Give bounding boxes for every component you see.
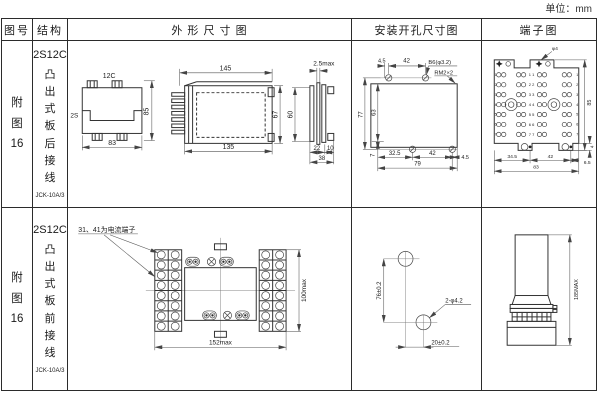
dim-100max: 100max bbox=[301, 278, 308, 302]
row1-fig-no: 附图16 bbox=[9, 93, 25, 155]
svg-text:1: 1 bbox=[576, 73, 578, 77]
dim-152max: 152max bbox=[209, 340, 233, 347]
row2-install-drawing: 76±0.2 20±0.2 2-φ4.2 bbox=[352, 208, 481, 390]
dim-38: 38 bbox=[319, 156, 326, 162]
dim-42-bottom: 42 bbox=[429, 151, 436, 157]
thread-spec-label: RM2×2 bbox=[434, 70, 453, 76]
mounting-holes bbox=[378, 75, 457, 153]
dim-10: 10 bbox=[327, 146, 334, 152]
dim-83: 83 bbox=[108, 140, 116, 147]
svg-text:3: 3 bbox=[576, 93, 578, 97]
row2-type-code: JCK-10A/3 bbox=[35, 368, 64, 374]
rear-view bbox=[310, 83, 334, 145]
header-structure: 结构 bbox=[33, 19, 68, 41]
row2-terminal-cell: 185MAX bbox=[482, 208, 596, 390]
row1-install-drawing: 4.5 42 B6(φ3.2) RM2×2 77 63 7 32.5 42 4.… bbox=[352, 41, 481, 207]
dim-4-5-top: 4.5 bbox=[378, 58, 386, 64]
dim-4-5-right: 4.5 bbox=[461, 155, 469, 161]
dim-85: 85 bbox=[143, 108, 150, 116]
header-install: 安装开孔尺寸图 bbox=[352, 19, 482, 41]
row2-fig-no-cell: 附图16 bbox=[2, 208, 33, 390]
svg-text:4: 4 bbox=[576, 103, 578, 107]
row2-outline-cell: 31、41为电流端子 100max 152max bbox=[68, 208, 352, 390]
label-2s: 2S bbox=[70, 113, 79, 120]
current-terminal-note: 31、41为电流端子 bbox=[78, 225, 135, 234]
terminal-row-numbers-left: 1 2 3 4 5 6 7 bbox=[495, 73, 497, 137]
dim-83-term: 83 bbox=[533, 165, 539, 171]
dim-42-term: 42 bbox=[548, 154, 554, 160]
svg-text:6: 6 bbox=[576, 123, 578, 127]
svg-text:3: 3 bbox=[495, 93, 497, 97]
svg-text:7 7: 7 7 bbox=[529, 132, 535, 137]
label-12c: 12C bbox=[103, 73, 116, 80]
dim-77: 77 bbox=[358, 111, 364, 118]
dim-6-5: 6.5 bbox=[584, 160, 591, 166]
relay-side-silhouette bbox=[507, 235, 557, 345]
row1-wiring-type: 凸出式板后接线 bbox=[43, 67, 57, 186]
dim-7: 7 bbox=[370, 154, 376, 157]
spec-sheet: 单位：mm 图号 结构 外 形 尺 寸 图 安装开孔尺寸图 端子图 附图16 2… bbox=[0, 0, 600, 400]
dim-185max: 185MAX bbox=[574, 279, 580, 300]
row1-structure-cell: 2S12C 凸出式板后接线 JCK-10A/3 bbox=[33, 41, 68, 208]
dim-76: 76±0.2 bbox=[377, 282, 383, 300]
unit-label: 单位：mm bbox=[545, 0, 592, 15]
hole-spec-label: B6(φ3.2) bbox=[428, 60, 451, 66]
row2-structure-cell: 2S12C 凸出式板前接线 JCK-10A/3 bbox=[33, 208, 68, 390]
terminal-row-numbers-right: 1 2 3 4 5 6 7 bbox=[576, 73, 578, 137]
dim-79: 79 bbox=[414, 162, 421, 168]
dim-4-foot: 4 bbox=[590, 145, 595, 148]
dim-85-right: 85 bbox=[587, 100, 593, 106]
dim-32-5: 32.5 bbox=[389, 151, 401, 157]
dim-20: 20±0.2 bbox=[431, 341, 449, 347]
row1-model: 2S12C bbox=[33, 49, 67, 61]
svg-text:3 3: 3 3 bbox=[529, 92, 535, 97]
svg-text:7: 7 bbox=[495, 133, 497, 137]
svg-text:5: 5 bbox=[576, 113, 578, 117]
row1-fig-no-cell: 附图16 bbox=[2, 41, 33, 208]
header-terminal: 端子图 bbox=[482, 19, 596, 41]
svg-text:2: 2 bbox=[495, 83, 497, 87]
svg-text:7: 7 bbox=[576, 133, 578, 137]
dim-145: 145 bbox=[220, 65, 232, 72]
height-dim bbox=[548, 235, 572, 345]
dim-22: 22 bbox=[314, 146, 321, 152]
svg-text:1: 1 bbox=[495, 73, 497, 77]
row1-type-code: JCK-10A/3 bbox=[35, 193, 64, 199]
row2-outline-drawing: 31、41为电流端子 100max 152max bbox=[68, 208, 351, 390]
row2-terminal-drawing: 185MAX bbox=[482, 208, 596, 390]
svg-text:5: 5 bbox=[495, 113, 497, 117]
header-fig-no: 图号 bbox=[2, 19, 33, 41]
row1-install-cell: 4.5 42 B6(φ3.2) RM2×2 77 63 7 32.5 42 4.… bbox=[352, 41, 482, 208]
spec-table: 图号 结构 外 形 尺 寸 图 安装开孔尺寸图 端子图 附图16 2S12C 凸… bbox=[1, 18, 597, 391]
svg-text:2: 2 bbox=[576, 83, 578, 87]
dim-135: 135 bbox=[223, 144, 235, 151]
svg-text:4 4: 4 4 bbox=[529, 102, 535, 107]
dim-34-5: 34.5 bbox=[507, 154, 517, 160]
screw-fittings bbox=[186, 257, 250, 320]
hole-centerlines bbox=[384, 251, 438, 347]
dim-2-5max: 2.5max bbox=[313, 60, 335, 67]
install-dims bbox=[363, 63, 457, 171]
dim-67: 67 bbox=[273, 111, 280, 119]
terminal-center-numbers: 1 1 2 2 3 3 4 4 5 5 6 6 7 7 bbox=[529, 72, 535, 137]
panel-cutout bbox=[371, 84, 457, 148]
top-view bbox=[82, 81, 142, 141]
side-view bbox=[172, 82, 274, 144]
svg-text:1 1: 1 1 bbox=[529, 72, 535, 77]
row2-wiring-type: 凸出式板前接线 bbox=[43, 242, 57, 361]
svg-text:5 5: 5 5 bbox=[529, 112, 535, 117]
dim-63: 63 bbox=[371, 109, 377, 116]
row2-install-cell: 76±0.2 20±0.2 2-φ4.2 bbox=[352, 208, 482, 390]
row1-terminal-drawing: 1 2 3 4 5 6 7 1 2 3 4 5 6 7 bbox=[482, 41, 596, 207]
svg-text:6 6: 6 6 bbox=[529, 122, 535, 127]
drill-holes bbox=[398, 251, 431, 329]
svg-text:6: 6 bbox=[495, 123, 497, 127]
row1-outline-drawing: 12C 2S 85 83 bbox=[68, 41, 351, 207]
row1-outline-cell: 12C 2S 85 83 bbox=[68, 41, 352, 208]
row1-terminal-cell: 1 2 3 4 5 6 7 1 2 3 4 5 6 7 bbox=[482, 41, 596, 208]
header-outline: 外 形 尺 寸 图 bbox=[68, 19, 352, 41]
svg-text:2 2: 2 2 bbox=[529, 82, 535, 87]
dim-60: 60 bbox=[288, 111, 295, 119]
row2-model: 2S12C bbox=[33, 224, 67, 236]
row2-fig-no: 附图16 bbox=[9, 268, 25, 330]
hole-dia-label-2: 2-φ4.2 bbox=[445, 298, 462, 304]
hole-dia-label: φ4 bbox=[552, 46, 558, 52]
svg-text:4: 4 bbox=[495, 103, 497, 107]
dim-42-top: 42 bbox=[403, 58, 410, 64]
